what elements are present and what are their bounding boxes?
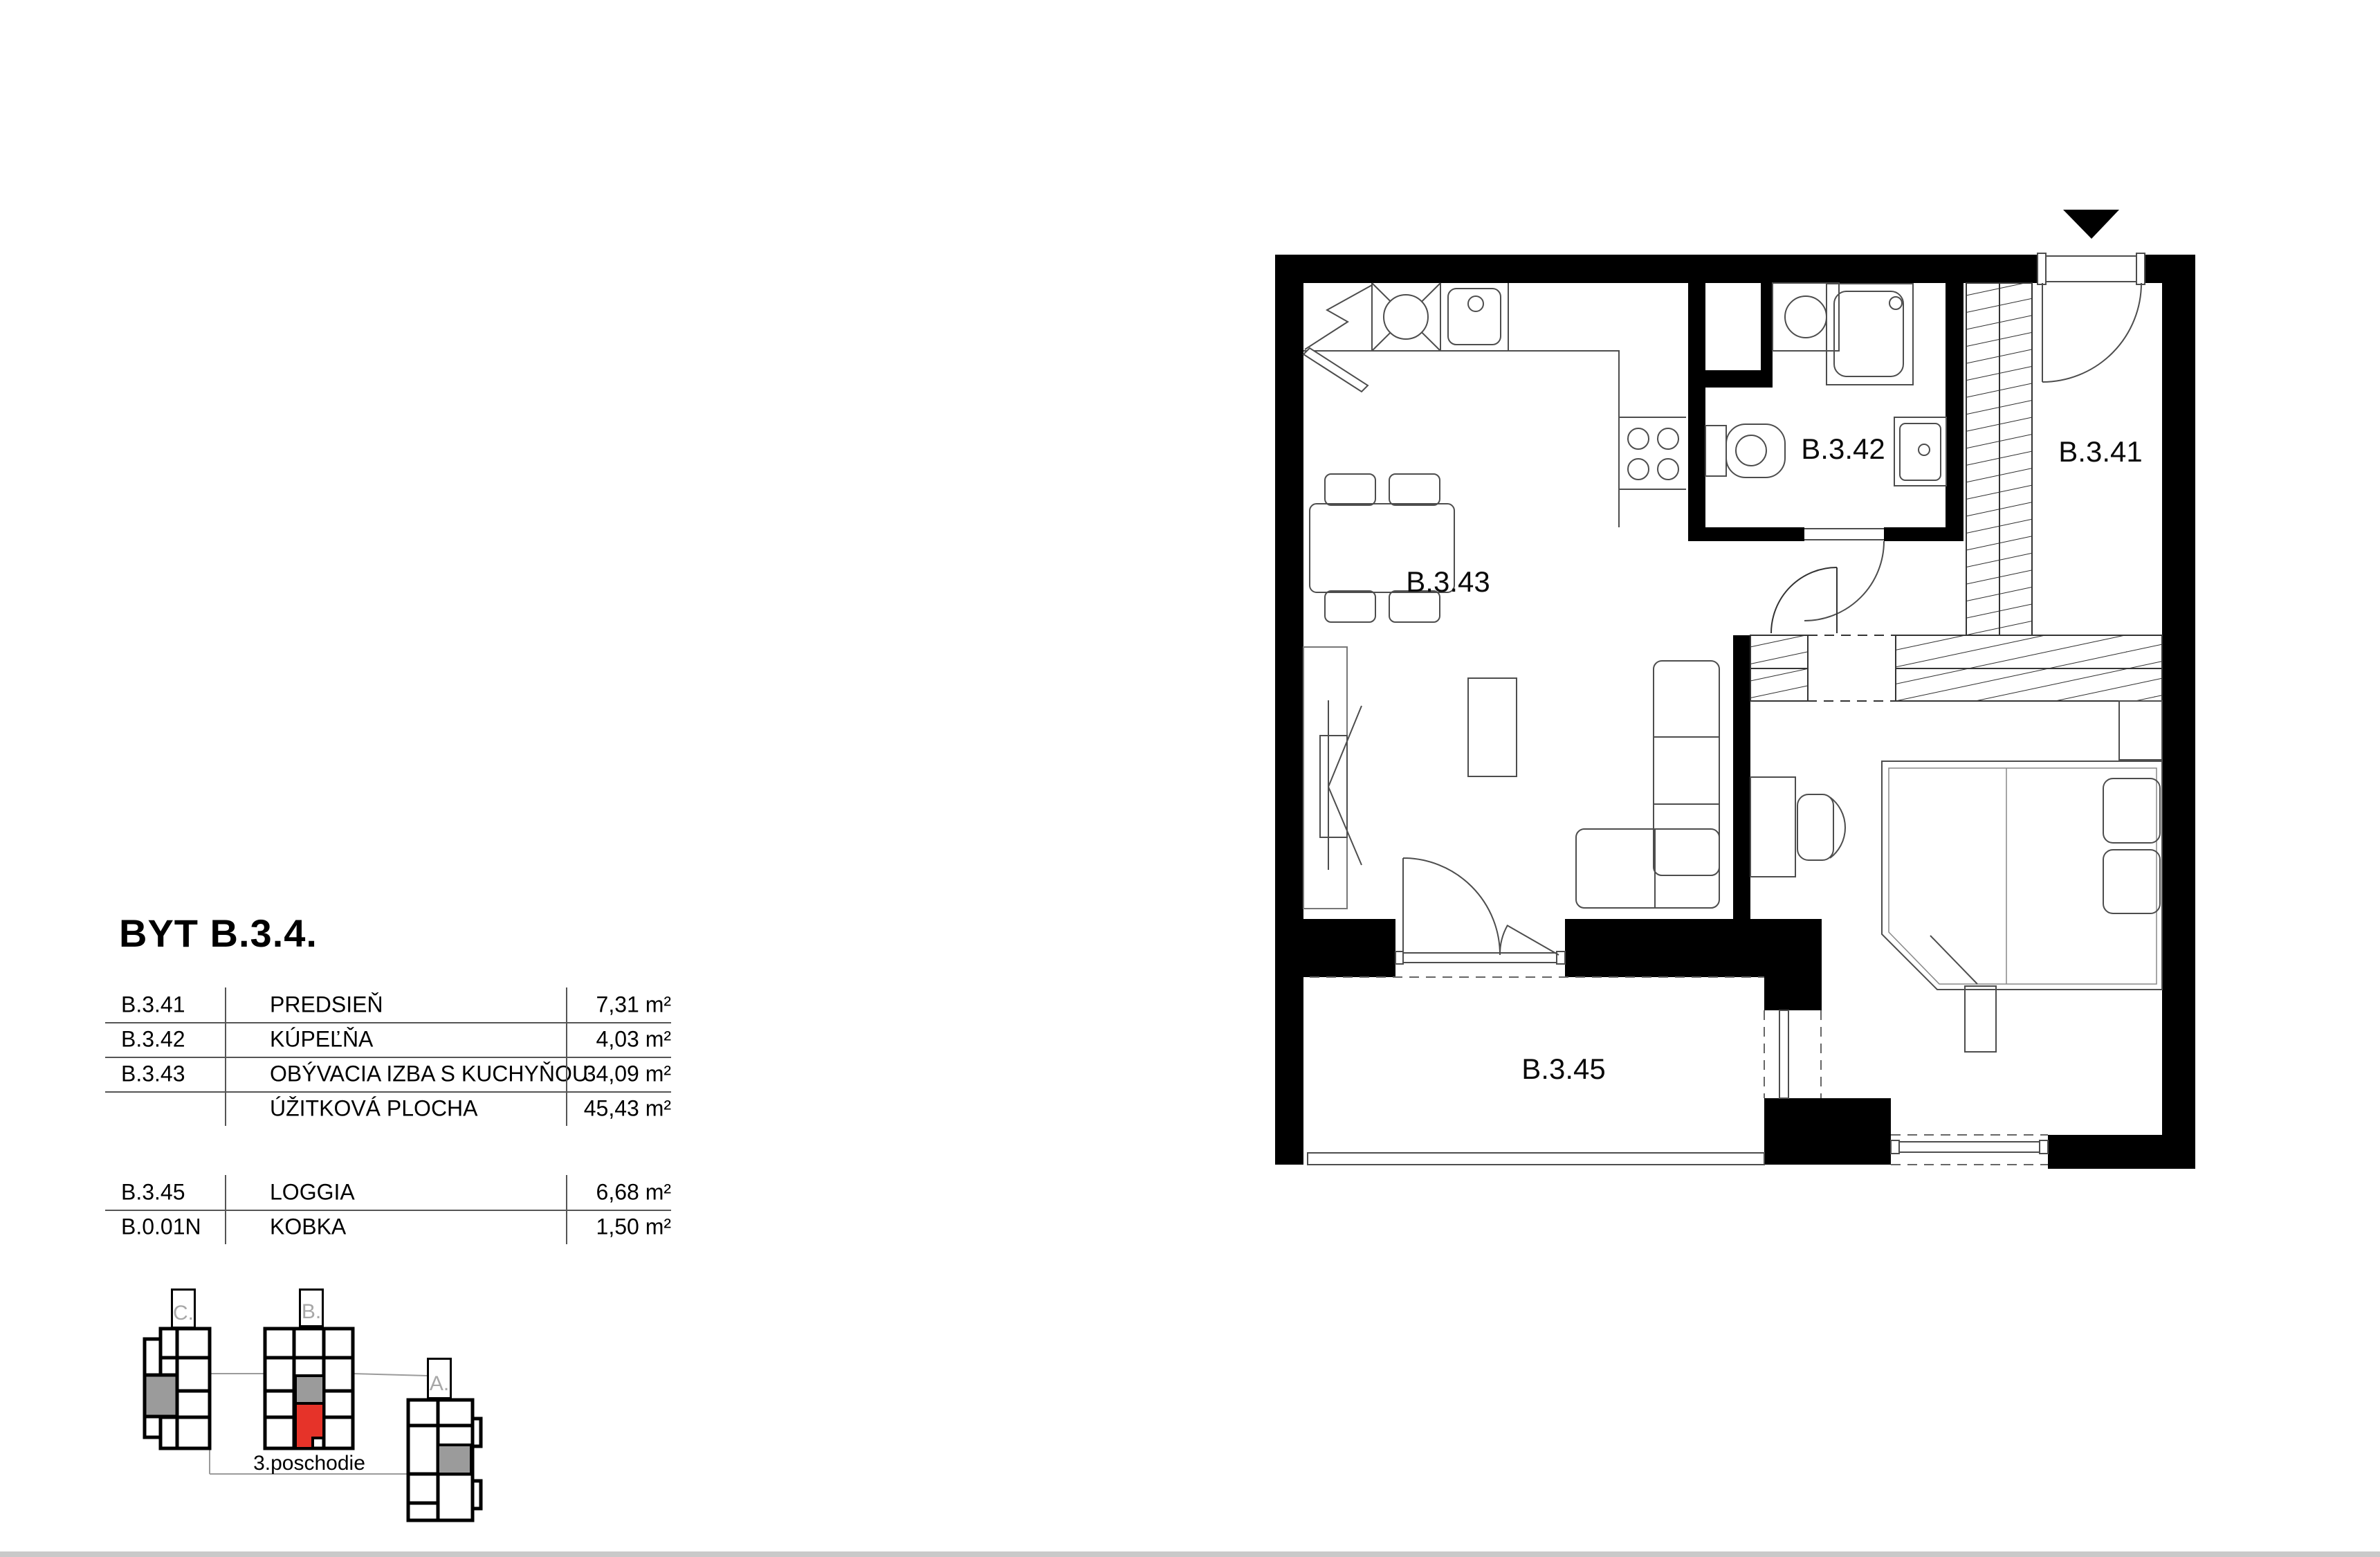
room-area: 1,50 m² <box>484 1214 671 1240</box>
room-area: 4,03 m² <box>484 1027 671 1053</box>
loggia-railing <box>1308 1153 1764 1165</box>
washing-machine-icon <box>1773 283 1839 351</box>
table-row: B.3.42 KÚPEĽŇA 4,03 m² <box>104 1022 678 1057</box>
room-label-bathroom: B.3.42 <box>1801 432 1885 466</box>
table-column-divider <box>225 1175 226 1244</box>
table-column-divider <box>225 987 226 1126</box>
table-row-total: ÚŽITKOVÁ PLOCHA 45,43 m² <box>104 1091 678 1126</box>
building-a <box>408 1400 481 1520</box>
north-arrow-icon <box>2063 210 2119 239</box>
building-b-muted-unit <box>295 1376 324 1403</box>
bedroom-passage <box>1808 635 1896 701</box>
page-title: BYT B.3.4. <box>119 911 318 956</box>
table-divider <box>105 1057 671 1058</box>
toilet-icon <box>1705 424 1785 477</box>
room-label-livingroom: B.3.43 <box>1406 565 1490 599</box>
room-label-entry: B.3.41 <box>2058 435 2142 468</box>
walls <box>1275 255 2195 1169</box>
desk-chair-icon <box>1797 794 1845 860</box>
room-code: B.3.43 <box>121 1062 185 1087</box>
room-name: LOGGIA <box>270 1180 355 1205</box>
coffee-table-icon <box>1468 678 1517 776</box>
building-a-muted-unit <box>438 1445 471 1474</box>
stove-icon <box>1619 417 1686 489</box>
room-label-loggia: B.3.45 <box>1521 1053 1605 1086</box>
room-name: PREDSIEŇ <box>270 992 383 1018</box>
nightstand-icon <box>2119 701 2162 760</box>
building-label-a: A. <box>427 1358 452 1399</box>
building-label-b: B. <box>299 1289 324 1327</box>
table-column-divider <box>566 1175 567 1244</box>
kitchen-counter <box>1303 283 1686 527</box>
open-door-leaf <box>1303 348 1368 392</box>
table-row: B.0.01N KOBKA 1,50 m² <box>104 1210 678 1244</box>
building-c <box>145 1329 210 1448</box>
entrance-door <box>2038 253 2145 382</box>
living-room-furniture <box>1303 474 1719 964</box>
room-area: 6,68 m² <box>484 1180 671 1205</box>
sofa-icon <box>1576 661 1719 908</box>
bathroom-door <box>1804 529 1884 621</box>
floor-plan-drawing <box>0 0 2380 1557</box>
room-code: B.3.42 <box>121 1027 185 1053</box>
room-area: 45,43 m² <box>484 1096 671 1122</box>
bedroom-bench-icon <box>1965 986 1996 1052</box>
table-row: B.3.41 PREDSIEŇ 7,31 m² <box>104 987 678 1022</box>
tall-cabinet-icon <box>1305 285 1372 349</box>
table-row: B.3.43 OBÝVACIA IZBA S KUCHYŇOU 34,09 m² <box>104 1057 678 1091</box>
desk-icon <box>1750 777 1795 877</box>
table-divider <box>105 1210 671 1211</box>
room-name: KÚPEĽŇA <box>270 1027 373 1053</box>
table-divider <box>105 1091 671 1093</box>
building-b <box>265 1329 353 1448</box>
bedroom-window <box>1891 1135 2048 1165</box>
dishwasher-icon <box>1372 283 1440 351</box>
table-divider <box>105 1022 671 1023</box>
loggia-side-window <box>1764 1010 1821 1098</box>
room-code: B.3.45 <box>121 1180 185 1205</box>
room-name: KOBKA <box>270 1214 346 1240</box>
bed-icon <box>1882 761 2162 990</box>
room-code: B.0.01N <box>121 1214 201 1240</box>
balcony-door <box>1395 858 1565 964</box>
kitchen-sink-icon <box>1448 289 1501 345</box>
room-area: 7,31 m² <box>484 992 671 1018</box>
floorplan-page: BYT B.3.4. B.3.41 PREDSIEŇ 7,31 m² B.3.4… <box>0 0 2380 1557</box>
table-column-divider <box>566 987 567 1126</box>
building-c-muted-unit <box>145 1375 177 1417</box>
building-label-c: C. <box>171 1289 196 1329</box>
dining-table-icon <box>1310 474 1454 622</box>
bedroom-door-arc <box>1771 567 1837 633</box>
room-area: 34,09 m² <box>484 1062 671 1087</box>
tv-unit-icon <box>1303 647 1362 909</box>
room-code: B.3.41 <box>121 992 185 1018</box>
floor-label: 3.poschodie <box>253 1452 365 1475</box>
room-name: ÚŽITKOVÁ PLOCHA <box>270 1096 478 1122</box>
washbasin-icon <box>1894 417 1946 486</box>
window-bottom-edge <box>0 1551 2380 1557</box>
table-row: B.3.45 LOGGIA 6,68 m² <box>104 1175 678 1210</box>
